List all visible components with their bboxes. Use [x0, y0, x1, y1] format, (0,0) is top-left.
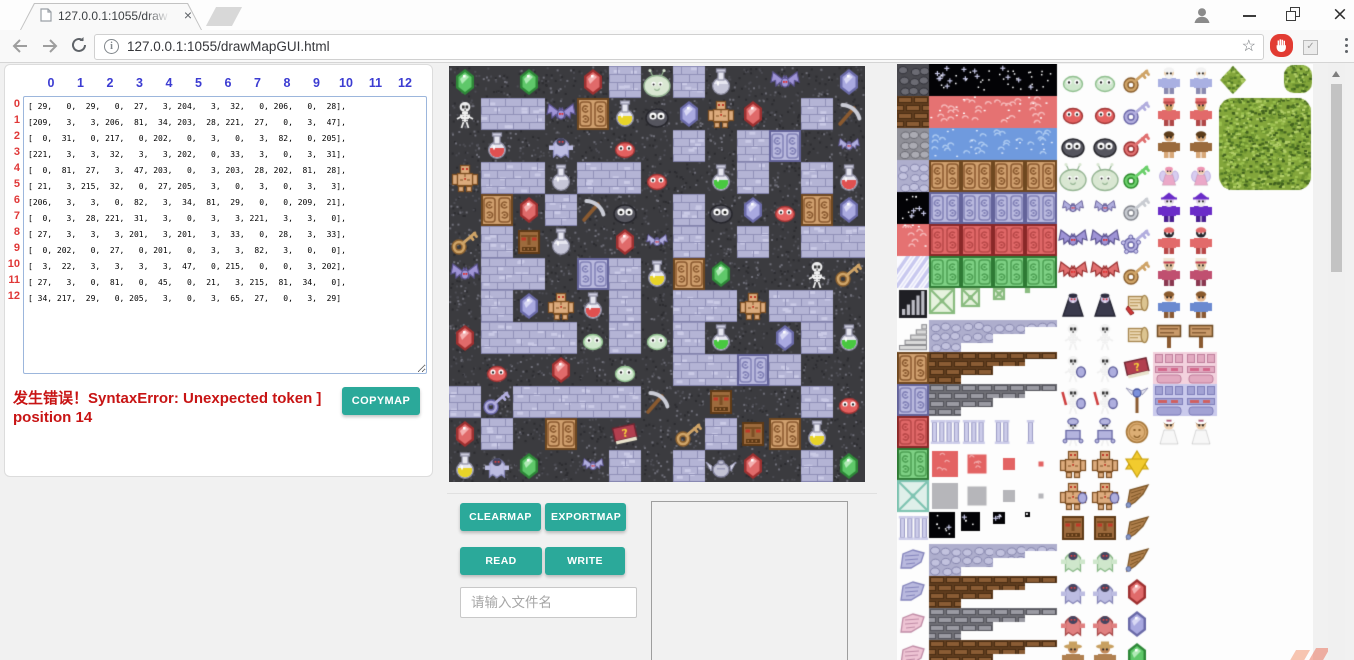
matrix-col-header: 0 — [36, 76, 66, 90]
exportmap-button[interactable]: EXPORTMAP — [545, 503, 626, 531]
error-message: 发生错误！SyntaxError: Unexpected token ] pos… — [13, 389, 341, 427]
matrix-col-header: 6 — [213, 76, 243, 90]
extension-check-icon[interactable]: ✓ — [1303, 40, 1318, 55]
matrix-col-header: 4 — [154, 76, 184, 90]
filename-input[interactable] — [460, 587, 637, 618]
browser-window: 127.0.0.1:1055/drawMa × × i 127.0.0.1:10… — [0, 0, 1354, 660]
matrix-col-header: 5 — [184, 76, 214, 90]
matrix-col-header: 7 — [243, 76, 273, 90]
matrix-row-label: 1 — [5, 114, 20, 130]
matrix-row-label: 5 — [5, 178, 20, 194]
error-line2: position 14 — [13, 409, 92, 426]
profile-icon[interactable] — [1192, 5, 1212, 25]
info-icon[interactable]: i — [104, 39, 119, 54]
matrix-row-label: 3 — [5, 146, 20, 162]
tab-title-fade — [146, 7, 170, 25]
matrix-row-label: 11 — [5, 274, 20, 290]
url-text[interactable]: 127.0.0.1:1055/drawMapGUI.html — [127, 39, 330, 54]
matrix-panel: 0123456789101112 0123456789101112 发生错误！S… — [4, 64, 433, 477]
matrix-row-label: 6 — [5, 194, 20, 210]
map-canvas[interactable] — [449, 66, 865, 482]
matrix-row-label: 12 — [5, 290, 20, 306]
address-bar[interactable]: i 127.0.0.1:1055/drawMapGUI.html ☆ — [94, 34, 1264, 60]
reload-icon[interactable] — [70, 36, 88, 54]
matrix-col-header: 9 — [302, 76, 332, 90]
new-tab-button[interactable] — [206, 7, 242, 26]
matrix-col-header: 1 — [66, 76, 96, 90]
tileset-palette-canvas[interactable] — [897, 64, 1313, 660]
matrix-row-label: 9 — [5, 242, 20, 258]
section-divider — [447, 493, 877, 494]
matrix-col-header: 12 — [390, 76, 420, 90]
read-button[interactable]: READ — [460, 547, 542, 575]
copymap-button[interactable]: COPYMAP — [342, 387, 420, 415]
title-bar: 127.0.0.1:1055/drawMa × × — [0, 0, 1354, 30]
page-scrollbar[interactable] — [1328, 63, 1345, 660]
matrix-row-label: 7 — [5, 210, 20, 226]
menu-dots-icon[interactable] — [1345, 38, 1349, 56]
matrix-row-label: 4 — [5, 162, 20, 178]
matrix-col-header: 8 — [272, 76, 302, 90]
matrix-col-header: 3 — [125, 76, 155, 90]
minimize-button[interactable] — [1240, 4, 1260, 26]
adblock-hand-icon[interactable] — [1270, 34, 1293, 57]
forward-icon[interactable] — [40, 36, 60, 56]
page-icon — [40, 8, 52, 22]
window-close-button[interactable]: × — [1330, 2, 1350, 26]
bookmark-star-icon[interactable]: ☆ — [1242, 36, 1256, 56]
matrix-col-header: 11 — [361, 76, 391, 90]
clearmap-button[interactable]: CLEARMAP — [460, 503, 541, 531]
matrix-row-label: 2 — [5, 130, 20, 146]
matrix-row-label: 8 — [5, 226, 20, 242]
matrix-row-label: 0 — [5, 98, 20, 114]
back-icon[interactable] — [10, 36, 30, 56]
matrix-col-header: 2 — [95, 76, 125, 90]
output-box — [651, 501, 848, 660]
write-button[interactable]: WRITE — [545, 547, 625, 575]
tab-close-icon[interactable]: × — [181, 7, 195, 23]
scrollbar-thumb[interactable] — [1331, 84, 1342, 272]
scrollbar-up-icon[interactable] — [1332, 71, 1340, 77]
map-matrix-textarea[interactable] — [23, 96, 427, 374]
matrix-row-label: 10 — [5, 258, 20, 274]
restore-button[interactable] — [1284, 4, 1304, 26]
matrix-col-header: 10 — [331, 76, 361, 90]
error-line1: 发生错误！SyntaxError: Unexpected token ] — [13, 390, 321, 407]
